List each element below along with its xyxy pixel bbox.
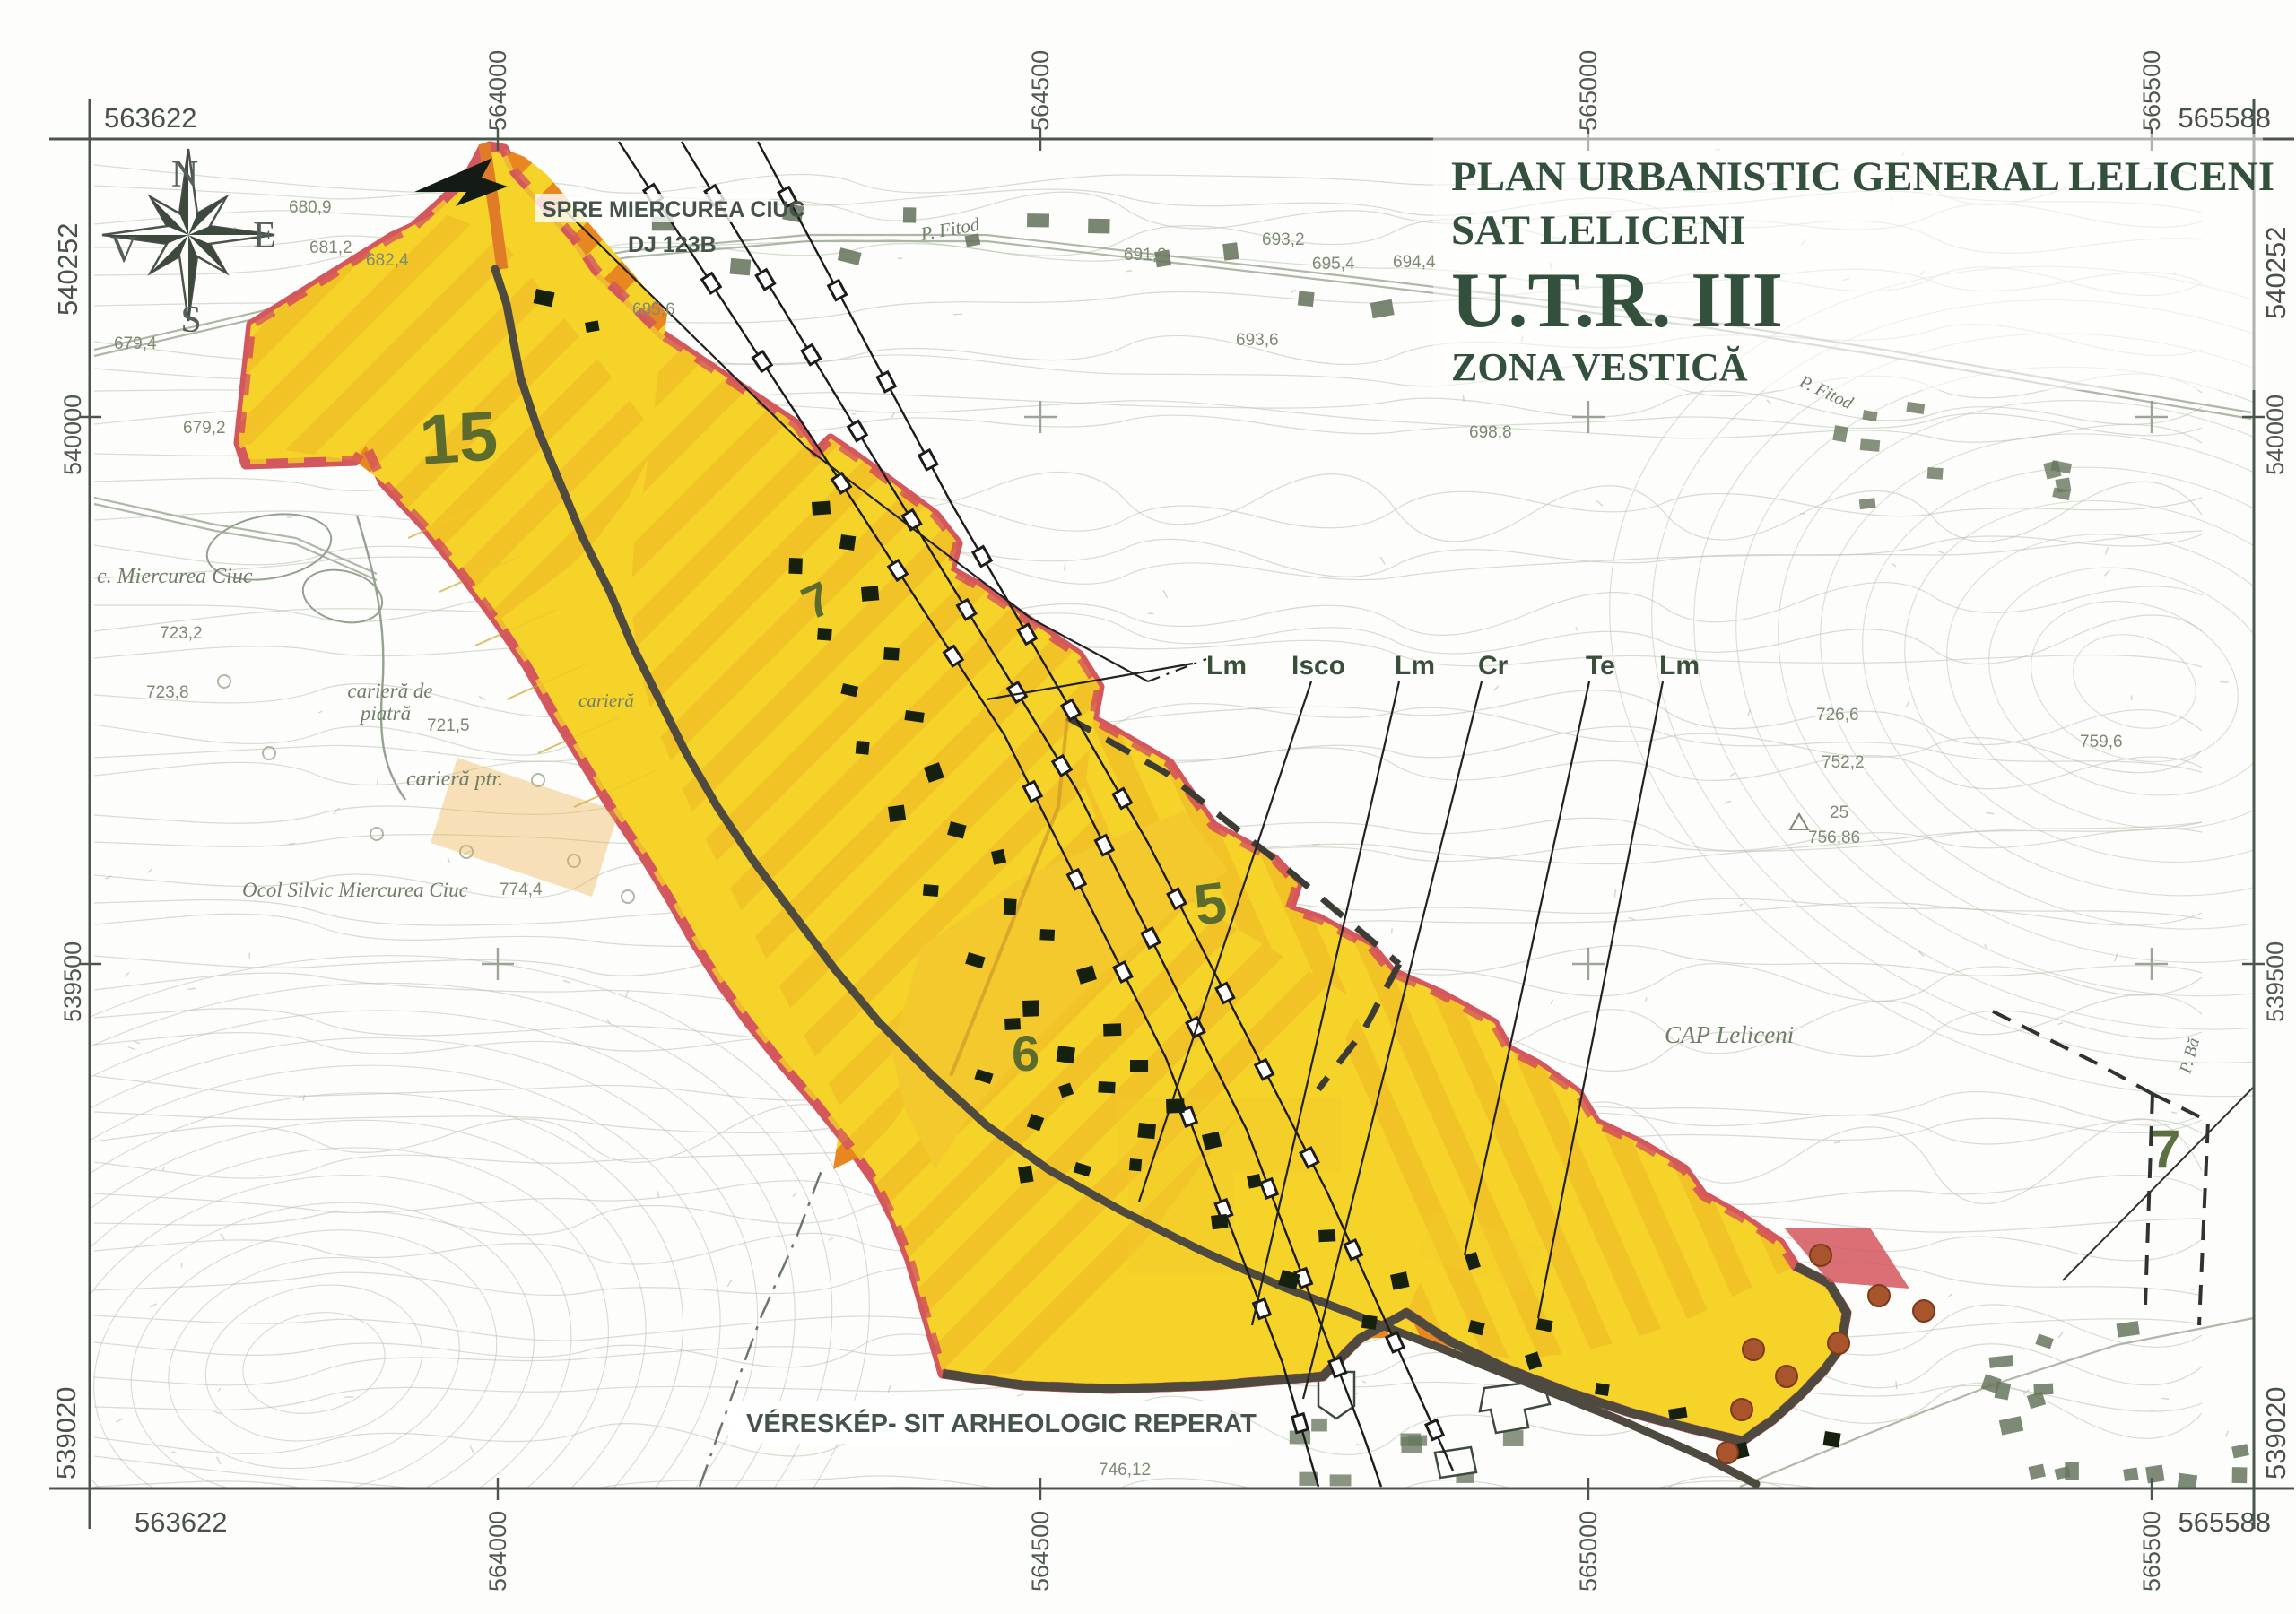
utr-label: U.T.R. III [1451,257,1783,344]
zone-label: ZONA VESTICĂ [1451,345,1748,389]
corner-bottom-right-x: 565588 [2179,1506,2271,1538]
corner-bottom-left-x: 563622 [135,1506,227,1538]
spot-elevation: 25 [1830,803,1848,822]
spot-elevation: 759,6 [2080,733,2123,751]
spot-elevation: 693,2 [1262,230,1305,249]
map-canvas: PLAN URBANISTIC GENERAL LELICENI SAT LEL… [0,0,2296,1614]
corner-left-top-y: 540252 [52,223,83,316]
parcel-number-7: 7 [2151,1119,2180,1179]
utility-label-isco: Isco [1291,651,1345,681]
utility-label-lm1: Lm [1206,651,1247,681]
spot-elevation: 723,2 [160,624,203,643]
ytick-left-1: 539500 [59,941,86,1022]
farm-label: CAP Leliceni [1665,1021,1794,1048]
ytick-left-0: 540000 [59,395,86,475]
utility-label-cr: Cr [1478,651,1509,681]
map-subtitle: SAT LELICENI [1451,207,1746,254]
compass-v: V [110,230,137,271]
map-sheet: PLAN URBANISTIC GENERAL LELICENI SAT LEL… [0,0,2296,1614]
direction-label: SPRE MIERCUREA CIUC [542,197,805,222]
corner-right-bottom-y: 539020 [2260,1387,2292,1479]
spot-elevation: 721,5 [427,716,470,735]
spot-elevation: 691,2 [1124,246,1167,265]
zone-number-6: 6 [1012,1025,1039,1081]
corner-left-bottom-y: 539020 [50,1387,82,1479]
compass-e: E [253,215,276,256]
spot-elevation: 693,6 [1236,331,1279,350]
xtick-bottom-1: 564500 [1027,1511,1054,1592]
spot-elevation: 679,4 [114,334,157,353]
spot-elevation: 752,2 [1822,753,1865,772]
triangulation-symbol [1790,814,1808,829]
spot-elevation: 726,6 [1816,706,1859,725]
xtick-top-2: 565000 [1575,50,1602,131]
quarry-small-label: carieră [578,690,634,711]
road-code-label: DJ 123B [628,232,717,257]
corner-top-right-x: 565588 [2179,102,2271,134]
spot-elevation: 680,9 [289,198,332,217]
spot-elevation: 681,2 [309,239,352,257]
map-title: PLAN URBANISTIC GENERAL LELICENI [1451,153,2274,200]
pond-outlines [202,505,405,800]
parcel-7-boundary [1993,1011,2254,1325]
xtick-bottom-2: 565000 [1575,1511,1602,1592]
corner-right-top-y: 540252 [2260,227,2292,319]
utility-label-lm3: Lm [1659,651,1700,681]
compass-s: S [180,299,201,341]
quarry-label-2: piatră [359,702,411,725]
river-label: c. Miercurea Ciuc [97,565,253,588]
zone-number-15: 15 [417,395,500,480]
utility-label-te: Te [1586,651,1615,681]
xtick-top-3: 565500 [2138,50,2165,131]
utility-label-lm2: Lm [1395,651,1435,681]
spot-elevation: 682,4 [366,251,409,270]
spot-elevation: 756,86 [1808,829,1860,847]
spot-elevation: 685,6 [632,300,675,319]
ytick-right-1: 539500 [2262,941,2289,1022]
xtick-bottom-0: 564000 [484,1511,511,1592]
archaeology-label: VÉRESKÉP- SIT ARHEOLOGIC REPERAT [746,1408,1257,1438]
spot-elevation: 746,12 [1099,1461,1151,1479]
stream-far-right-label: P. Bă [2176,1036,2204,1076]
compass-n: N [171,154,198,195]
xtick-bottom-3: 565500 [2138,1511,2165,1592]
spot-elevation: 698,8 [1469,423,1512,442]
xtick-top-1: 564500 [1027,50,1054,131]
spot-elevation: 695,4 [1312,255,1355,273]
quarry-ptr-label: carieră ptr. [406,768,503,791]
ytick-right-0: 540000 [2262,395,2289,475]
quarry-label-1: carieră de [347,680,432,702]
spot-elevation: 723,8 [146,683,189,702]
spot-elevation: 694,4 [1393,253,1436,272]
corner-top-left-x: 563622 [104,102,196,134]
xtick-top-0: 564000 [484,50,511,131]
spot-elevation: 774,4 [500,881,543,899]
forestry-label: Ocol Silvic Miercurea Ciuc [242,879,468,901]
spot-elevation: 679,2 [183,419,226,438]
